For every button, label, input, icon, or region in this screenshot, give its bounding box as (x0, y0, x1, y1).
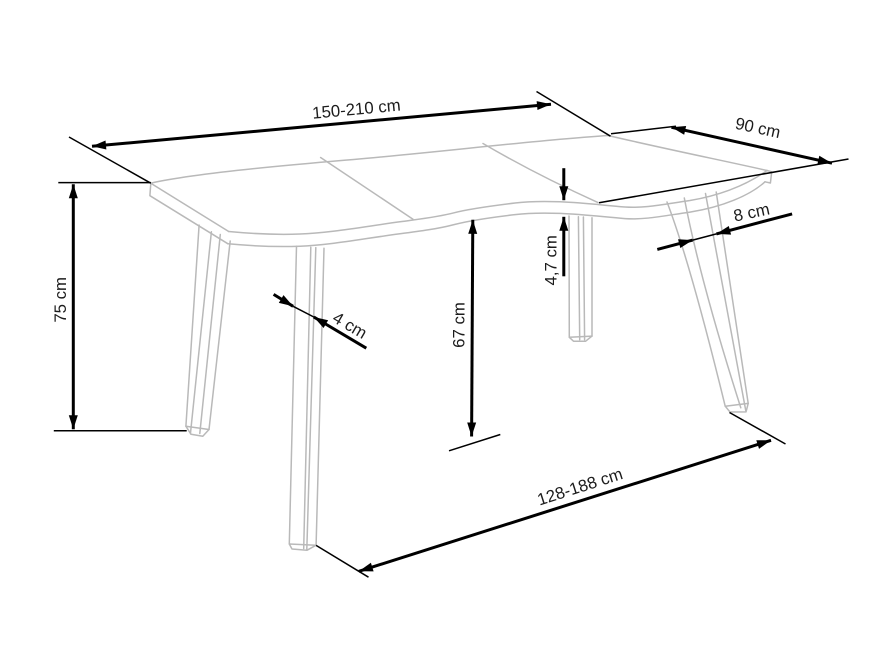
svg-text:4,7 cm: 4,7 cm (542, 235, 561, 285)
svg-text:75 cm: 75 cm (51, 277, 70, 323)
svg-text:67 cm: 67 cm (449, 302, 468, 348)
svg-text:128-188 cm: 128-188 cm (535, 464, 625, 509)
svg-text:90 cm: 90 cm (733, 114, 782, 142)
